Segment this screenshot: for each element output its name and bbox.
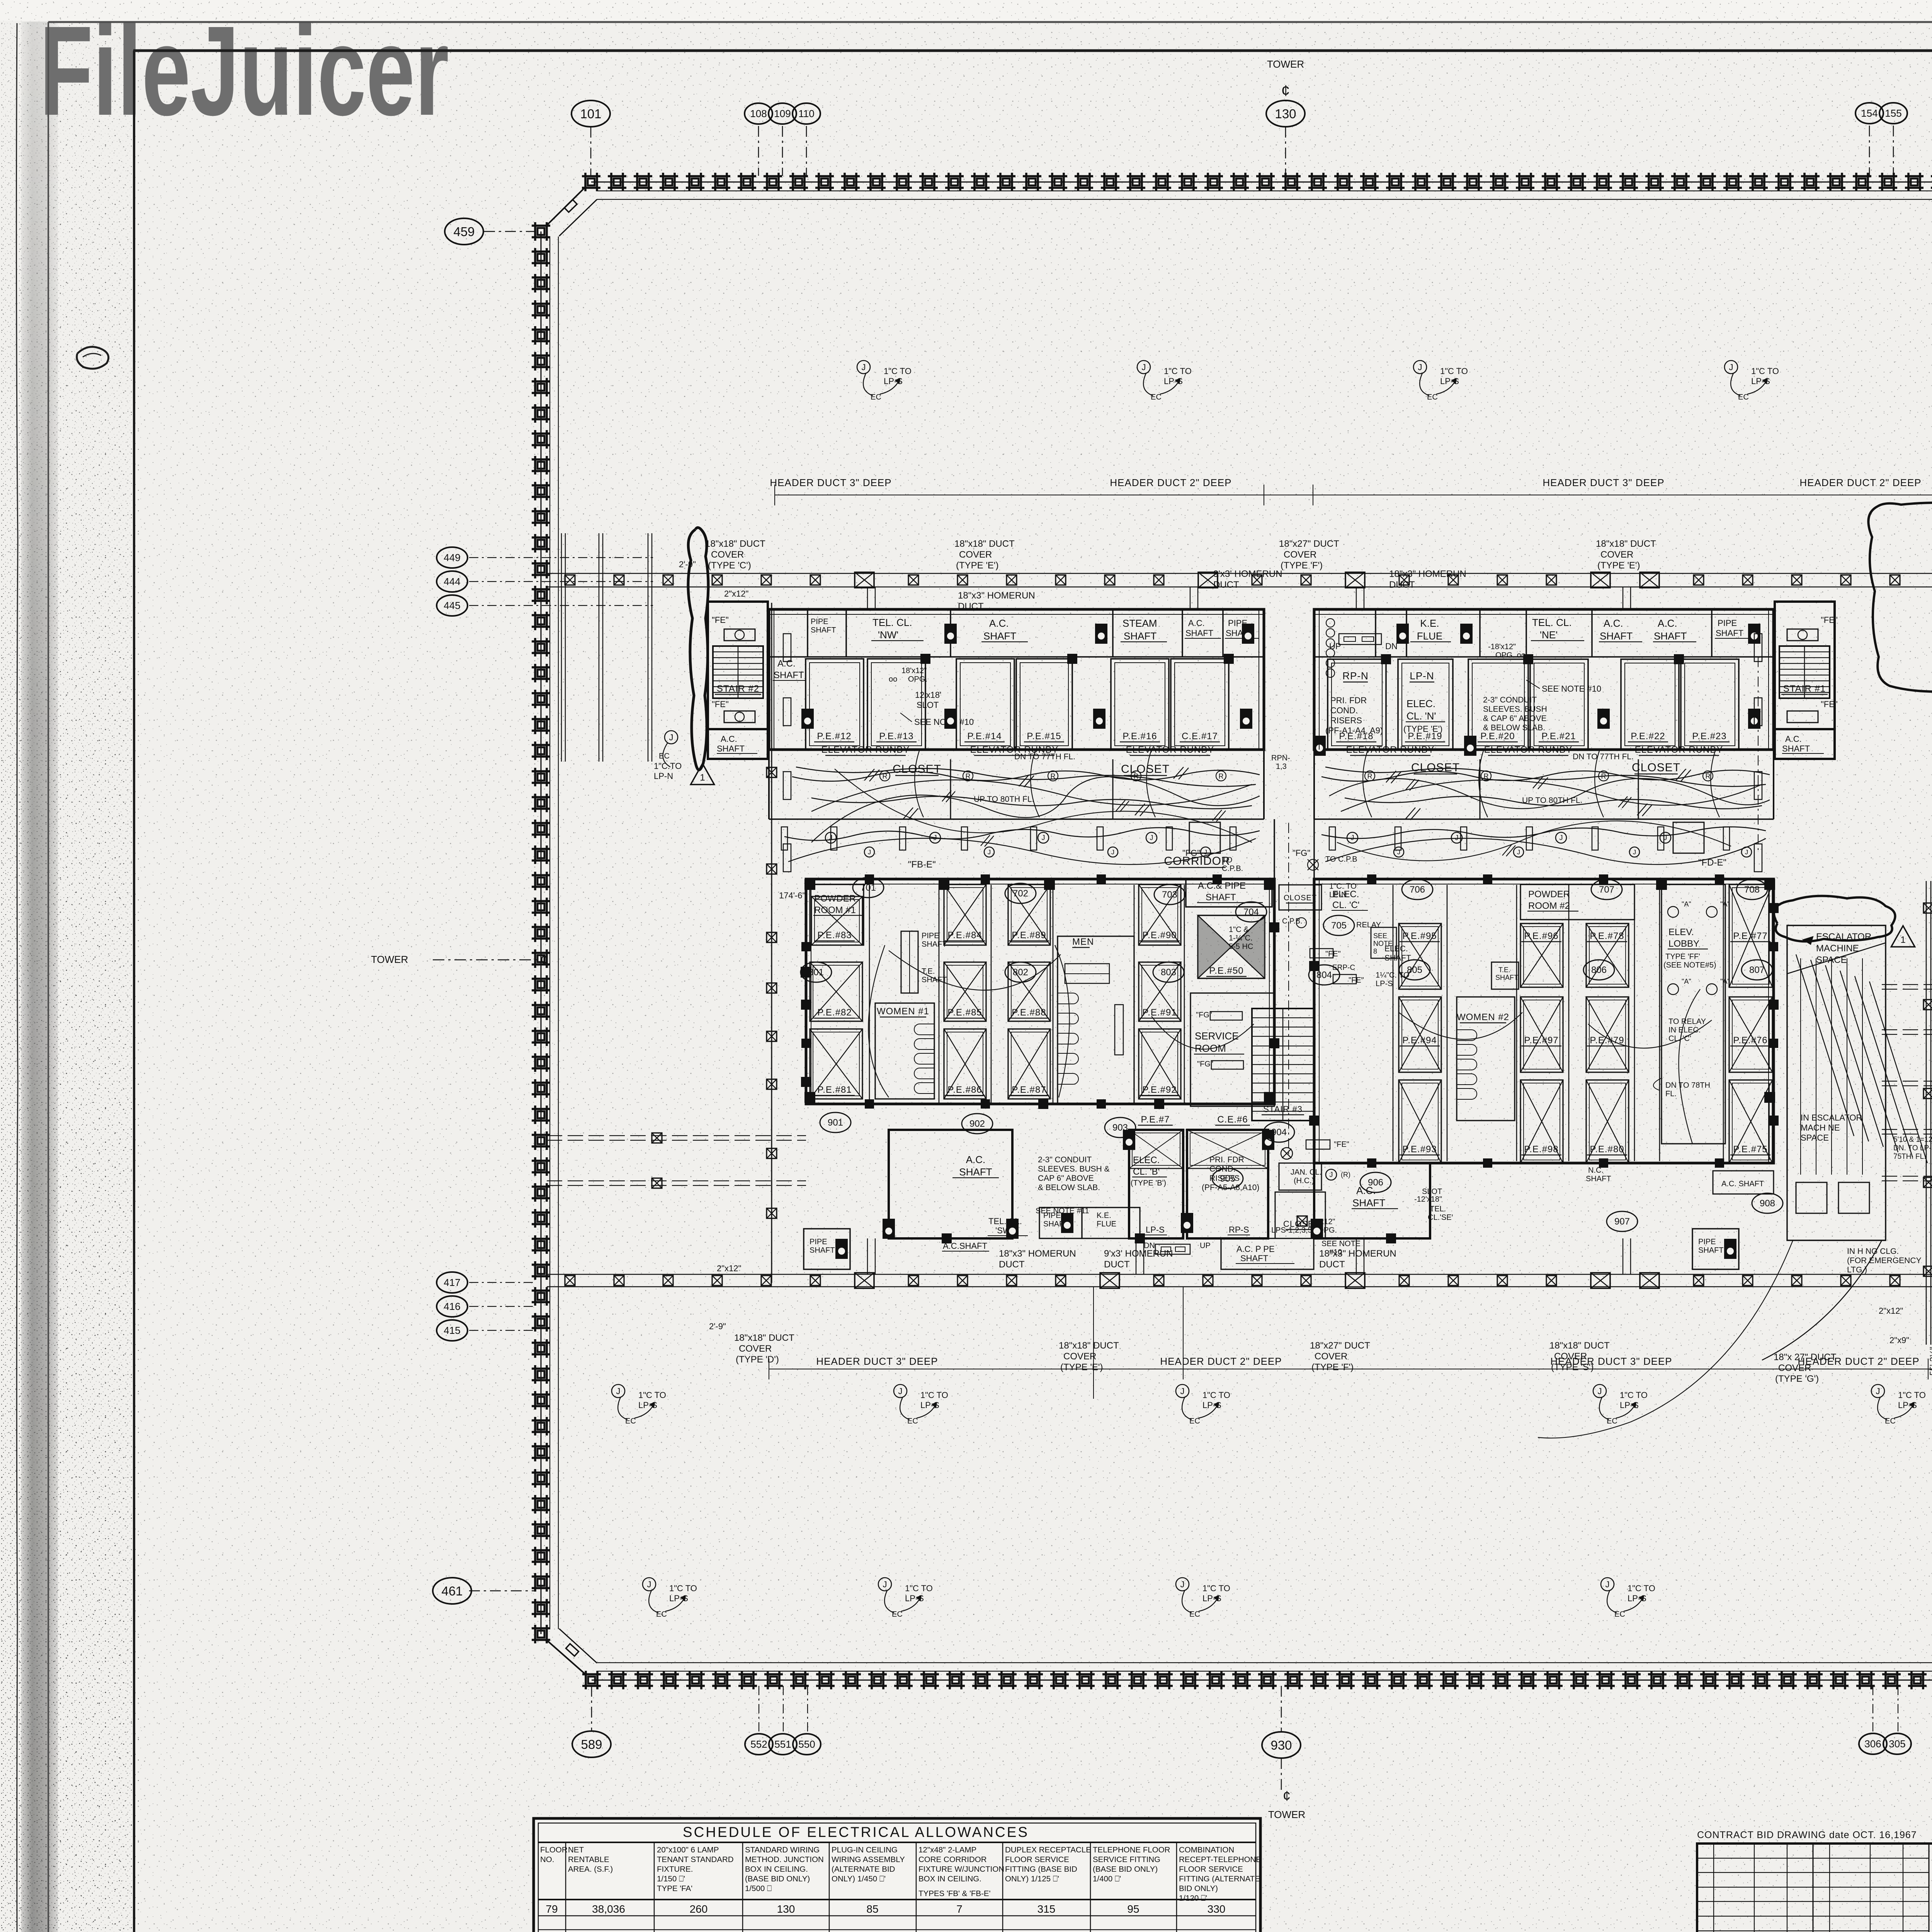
svg-text:315: 315 [1037,1903,1056,1915]
svg-text:J: J [862,362,866,372]
svg-text:RECEPT-TELEPHONE: RECEPT-TELEPHONE [1179,1855,1261,1864]
svg-text:A.C. P PE: A.C. P PE [1236,1244,1275,1254]
svg-text:EC: EC [1427,393,1438,401]
svg-text:130: 130 [1275,107,1296,121]
svg-text:SHAFT: SHAFT [1716,628,1743,638]
svg-text:A.C.: A.C. [966,1154,986,1165]
svg-text:930: 930 [1270,1738,1292,1752]
svg-text:J: J [1560,834,1563,842]
svg-text:T.E.: T.E. [922,967,935,976]
svg-text:J: J [934,834,937,842]
svg-text:1: 1 [1900,935,1905,945]
svg-text:DN. TO LP-S ON: DN. TO LP-S ON [1893,1144,1932,1152]
svg-text:18"x27" DUCT: 18"x27" DUCT [1310,1340,1370,1351]
svg-text:RELAY: RELAY [1356,921,1381,929]
svg-text:551: 551 [774,1738,791,1750]
svg-text:J: J [1598,1386,1602,1396]
svg-text:552: 552 [750,1738,767,1750]
svg-text:P.E.#18: P.E.#18 [1339,731,1373,742]
svg-text:ELEVATOR RUNBY: ELEVATOR RUNBY [1126,745,1214,755]
svg-text:STAIR #2: STAIR #2 [717,684,759,694]
svg-text:J: J [1455,834,1459,842]
svg-text:R: R [1367,772,1372,780]
svg-text:PIPE: PIPE [811,617,828,626]
svg-text:J: J [616,1386,621,1396]
svg-text:EC: EC [625,1417,636,1425]
svg-text:8: 8 [1373,947,1377,955]
svg-text:SHAFT: SHAFT [922,940,947,949]
svg-text:DUPLEX RECEPTACLE: DUPLEX RECEPTACLE [1005,1845,1091,1854]
svg-text:706: 706 [1410,884,1425,895]
svg-text:CAP 6" ABOVE: CAP 6" ABOVE [1038,1174,1094,1183]
svg-text:TO: TO [1222,856,1232,864]
svg-text:P.E.#90: P.E.#90 [1142,930,1177,940]
svg-text:550: 550 [798,1738,815,1750]
svg-text:SHAFT: SHAFT [1124,630,1156,642]
svg-text:1"C TO: 1"C TO [1628,1583,1655,1593]
svg-text:MACH NE: MACH NE [1801,1123,1840,1133]
svg-text:CL.'SE': CL.'SE' [1428,1213,1453,1222]
svg-text:18"x 27" DUCT: 18"x 27" DUCT [1774,1352,1837,1362]
svg-text:P.E.#19: P.E.#19 [1408,731,1442,742]
svg-text:907: 907 [1614,1216,1630,1227]
svg-text:WOMEN #2: WOMEN #2 [1457,1012,1509,1022]
svg-text:18"x18" DUCT: 18"x18" DUCT [734,1333,794,1343]
svg-text:260: 260 [690,1903,708,1915]
svg-text:J: J [898,1386,903,1396]
svg-text:EC: EC [1738,393,1749,401]
svg-text:K.E.: K.E. [1097,1211,1111,1220]
svg-text:'NE': 'NE' [1540,629,1558,641]
svg-text:"FE": "FE" [1334,1140,1349,1149]
svg-text:704: 704 [1243,907,1259,917]
svg-text:J: J [1605,1580,1610,1589]
svg-text:(TYPE 'E'): (TYPE 'E') [1597,560,1640,571]
svg-text:J: J [1330,1171,1333,1179]
svg-text:LP-S: LP-S [1628,1594,1646,1603]
svg-text:FLOOR SERVICE: FLOOR SERVICE [1005,1855,1069,1864]
svg-text:TYPES 'FB' & 'FB-E': TYPES 'FB' & 'FB-E' [918,1889,991,1898]
svg-text:J: J [1042,834,1045,842]
svg-text:2"x12": 2"x12" [717,1264,741,1273]
svg-text:COVER: COVER [711,549,744,560]
svg-text:P.E.#94: P.E.#94 [1402,1035,1437,1046]
svg-text:904: 904 [1271,1127,1287,1138]
svg-text:DN: DN [1144,1242,1155,1250]
svg-text:(TYPE 'S'): (TYPE 'S') [1551,1362,1594,1372]
svg-text:J: J [988,849,991,856]
svg-text:1"C TO: 1"C TO [1440,366,1468,376]
svg-text:P.E.#50: P.E.#50 [1209,966,1243,976]
svg-text:FIXTURE W/JUNCTION: FIXTURE W/JUNCTION [918,1865,1004,1874]
svg-text:COVER: COVER [1063,1351,1096,1362]
svg-text:J: J [1418,362,1422,372]
svg-text:"FE": "FE" [1821,699,1838,709]
svg-text:NO.: NO. [540,1855,554,1864]
svg-text:18'x12": 18'x12" [901,667,927,675]
svg-text:J: J [1664,834,1667,842]
svg-text:TYPE 'FF': TYPE 'FF' [1665,952,1700,961]
svg-text:COVER: COVER [739,1344,772,1354]
svg-text:ELEC.: ELEC. [1406,698,1435,709]
svg-text:LP-S: LP-S [1440,376,1459,386]
svg-text:1"C TO: 1"C TO [669,1583,697,1593]
svg-text:CLOSET: CLOSET [1121,763,1170,776]
svg-text:908: 908 [1760,1198,1775,1209]
svg-text:J: J [1633,849,1636,856]
svg-text:COMBINATION: COMBINATION [1179,1845,1234,1854]
svg-text:417: 417 [444,1277,460,1288]
svg-text:5-5 HC: 5-5 HC [1229,942,1253,951]
svg-text:SHAFT: SHAFT [1600,630,1633,642]
svg-text:(TYPE 'F'): (TYPE 'F') [1281,560,1323,571]
svg-text:(TYPE 'E'): (TYPE 'E') [956,560,999,571]
svg-text:ELEVATOR RUNBY: ELEVATOR RUNBY [1635,745,1723,755]
svg-text:(PF-A5-A8,A10): (PF-A5-A8,A10) [1202,1183,1259,1192]
svg-text:R: R [966,772,971,780]
svg-text:FLUE: FLUE [1417,630,1442,642]
svg-text:SPACE: SPACE [1816,955,1847,965]
svg-text:18"x27" DUCT: 18"x27" DUCT [1279,539,1339,549]
svg-text:SHAFT: SHAFT [1698,1246,1724,1255]
svg-text:1¼"C. TO: 1¼"C. TO [1376,971,1410,980]
svg-text:SHAFT: SHAFT [1206,892,1236,903]
svg-text:CL. 'C': CL. 'C' [1332,900,1360,910]
svg-text:MACHINE: MACHINE [1816,943,1859,954]
svg-text:1"C TO: 1"C TO [905,1583,933,1593]
svg-text:79: 79 [546,1903,558,1915]
svg-text:(TYPE 'E'): (TYPE 'E') [1060,1362,1103,1372]
svg-text:LP-S: LP-S [1146,1225,1165,1235]
svg-text:IN ESCALATOR: IN ESCALATOR [1801,1113,1862,1122]
svg-text:METHOD. JUNCTION: METHOD. JUNCTION [745,1855,824,1864]
svg-text:LP-S: LP-S [905,1594,924,1603]
svg-text:POWDER: POWDER [1528,889,1570,900]
svg-text:"FD-E": "FD-E" [1698,857,1726,868]
svg-text:703: 703 [1162,889,1177,900]
svg-text:J: J [669,733,673,742]
svg-text:18"x3" HOMERUN: 18"x3" HOMERUN [958,590,1035,601]
svg-text:1"C. TO: 1"C. TO [1329,882,1357,891]
svg-text:A.C. SHAFT: A.C. SHAFT [1721,1180,1764,1188]
svg-text:SHAFT: SHAFT [1782,744,1810,753]
svg-text:708: 708 [1744,884,1760,895]
svg-text:FITTING (BASE BID: FITTING (BASE BID [1005,1865,1077,1874]
svg-text:MEN: MEN [1072,937,1094,947]
svg-text:P.E.#15: P.E.#15 [1027,731,1061,742]
svg-text:HEADER DUCT 2" DEEP: HEADER DUCT 2" DEEP [1110,477,1231,488]
svg-text:1"C TO: 1"C TO [884,366,912,376]
svg-text:1/400 ⎕': 1/400 ⎕' [1093,1874,1121,1883]
svg-text:ELEC.: ELEC. [1384,944,1408,953]
svg-text:¢: ¢ [1283,1788,1291,1804]
svg-text:EC: EC [1614,1610,1625,1619]
svg-text:(TYPE 'B'): (TYPE 'B') [1131,1179,1166,1187]
svg-text:J: J [1397,849,1401,856]
svg-text:ELEVATOR RUNBY: ELEVATOR RUNBY [821,745,910,755]
svg-text:ROOM #2: ROOM #2 [1528,901,1570,911]
svg-text:HEADER DUCT 3" DEEP: HEADER DUCT 3" DEEP [1543,477,1664,488]
svg-text:905: 905 [1220,1173,1235,1184]
svg-text:SHAFT: SHAFT [774,670,804,680]
svg-text:445: 445 [444,600,460,611]
svg-text:SERVICE: SERVICE [1195,1030,1239,1042]
svg-text:¢: ¢ [1281,82,1290,99]
svg-text:RPN-: RPN- [1271,754,1290,762]
svg-text:P.E.#21: P.E.#21 [1541,731,1576,742]
svg-text:J: J [1111,849,1115,856]
svg-text:"A": "A" [1682,978,1691,985]
svg-text:LP-S: LP-S [1202,1594,1221,1603]
svg-text:2-3" CONDUIT: 2-3" CONDUIT [1483,696,1537,704]
svg-text:"A": "A" [1720,978,1730,985]
svg-text:ELEV.: ELEV. [1668,927,1694,937]
svg-text:P.E.#76: P.E.#76 [1733,1035,1767,1046]
svg-text:PIPE: PIPE [922,932,939,940]
svg-text:95: 95 [1127,1903,1139,1915]
svg-text:PLUG-IN CEILING: PLUG-IN CEILING [832,1845,898,1854]
svg-text:STAIR #1: STAIR #1 [1783,684,1826,694]
svg-text:55'-2½": 55'-2½" [1928,1347,1932,1376]
svg-text:2"x12": 2"x12" [1879,1306,1903,1316]
svg-text:2"x9": 2"x9" [1889,1335,1909,1345]
svg-text:1"C TO: 1"C TO [1620,1390,1648,1400]
svg-text:COVER: COVER [1554,1351,1587,1362]
svg-text:SCHEDULE OF ELECTRICAL A: SCHEDULE OF ELECTRICAL ALLOWANCES [683,1824,1029,1840]
svg-text:P.E.#83: P.E.#83 [817,930,852,940]
svg-text:1/500 ⎕: 1/500 ⎕ [745,1884,772,1893]
svg-text:110: 110 [798,108,814,119]
svg-text:1: 1 [700,772,705,783]
svg-text:LP-N: LP-N [654,771,673,781]
svg-text:P.E.#20: P.E.#20 [1480,731,1515,742]
svg-text:TEL.: TEL. [1430,1205,1446,1213]
svg-text:2"x12": 2"x12" [724,589,748,599]
svg-text:1"C TO: 1"C TO [638,1390,666,1400]
svg-text:PIPE: PIPE [1043,1211,1061,1220]
svg-text:LP-S: LP-S [884,376,903,386]
svg-text:& CAP 6" ABOVE: & CAP 6" ABOVE [1483,714,1547,723]
svg-text:K.E.: K.E. [1420,617,1439,629]
svg-text:J: J [1204,849,1207,856]
svg-text:P.E.#97: P.E.#97 [1524,1035,1558,1046]
svg-text:P.E.#81: P.E.#81 [817,1085,852,1095]
svg-text:P.E.#12: P.E.#12 [817,731,851,742]
svg-text:POWDER: POWDER [814,893,856,904]
svg-text:SHAFT: SHAFT [922,976,947,984]
svg-text:(R): (R) [1341,1171,1350,1179]
svg-text:DN TO 77TH FL.: DN TO 77TH FL. [1573,752,1634,761]
svg-text:COVER: COVER [1600,549,1633,560]
svg-text:EC: EC [1189,1610,1200,1619]
svg-text:P.E.#7: P.E.#7 [1141,1114,1170,1125]
svg-text:LP-S: LP-S [1898,1400,1917,1410]
svg-text:P.E.#23: P.E.#23 [1692,731,1726,742]
svg-text:SHAFT: SHAFT [1586,1175,1611,1183]
svg-text:LP-S: LP-S [669,1594,688,1603]
svg-text:TEL. CL.: TEL. CL. [872,617,912,628]
svg-text:HEADER DUCT 3" DEEP: HEADER DUCT 3" DEEP [770,477,891,488]
svg-text:COVER: COVER [1778,1363,1811,1373]
svg-text:PRI. FDR: PRI. FDR [1330,696,1367,705]
svg-text:SLOT: SLOT [1422,1187,1442,1196]
svg-text:1-¼"C.: 1-¼"C. [1229,934,1253,942]
svg-text:ROOM #1: ROOM #1 [814,905,856,915]
svg-text:PIPE: PIPE [1718,618,1737,628]
svg-text:R: R [883,772,888,780]
svg-text:(H.C.): (H.C.) [1294,1177,1314,1185]
svg-text:WOMEN #1: WOMEN #1 [877,1006,929,1017]
svg-text:1"C TO: 1"C TO [1898,1390,1926,1400]
svg-text:HEADER DUCT 2" DEEP: HEADER DUCT 2" DEEP [1799,477,1921,488]
svg-text:PIPE: PIPE [810,1238,827,1246]
svg-text:DUCT: DUCT [1319,1259,1345,1270]
svg-text:TEL. CL.: TEL. CL. [1532,617,1572,628]
svg-text:CL. 'N': CL. 'N' [1406,710,1436,722]
svg-text:P.E.#91: P.E.#91 [1142,1007,1177,1018]
svg-text:SERVICE FITTING: SERVICE FITTING [1093,1855,1160,1864]
svg-text:J: J [1729,362,1733,372]
svg-text:J: J [1517,849,1520,856]
svg-text:5'10 & 1=12-1"C: 5'10 & 1=12-1"C [1893,1136,1932,1144]
svg-text:18"x18" DUCT: 18"x18" DUCT [1596,539,1656,549]
svg-text:18"x18" DUCT: 18"x18" DUCT [705,539,765,549]
svg-text:FIXTURE.: FIXTURE. [657,1865,693,1874]
svg-text:P.E.#96: P.E.#96 [1524,931,1558,941]
svg-text:& BELOW SLAB.: & BELOW SLAB. [1038,1183,1100,1192]
svg-text:306: 306 [1864,1738,1881,1750]
svg-text:461: 461 [441,1584,463,1598]
svg-text:P.E.#92: P.E.#92 [1142,1085,1177,1095]
svg-text:SEE: SEE [1373,932,1387,940]
svg-text:1"C TO: 1"C TO [1164,366,1192,376]
svg-text:AREA. (S.F.): AREA. (S.F.) [568,1865,613,1874]
svg-text:1/120 ⎕': 1/120 ⎕' [1179,1894,1207,1903]
svg-text:108: 108 [750,108,767,119]
svg-text:SHAFT: SHAFT [811,626,836,634]
svg-text:589: 589 [581,1737,602,1752]
svg-text:SHAFT: SHAFT [717,744,745,753]
svg-text:'NW': 'NW' [878,629,898,641]
svg-text:FITTING (ALTERNATE: FITTING (ALTERNATE [1179,1874,1260,1883]
svg-text:7: 7 [956,1903,963,1915]
svg-text:P.E.#16: P.E.#16 [1122,731,1157,742]
svg-text:C.E.#6: C.E.#6 [1217,1114,1248,1125]
svg-text:"FG": "FG" [1293,848,1310,858]
svg-text:"FG": "FG" [1197,1060,1213,1068]
svg-text:P.E.#88: P.E.#88 [1012,1007,1046,1018]
svg-text:P.E.#84: P.E.#84 [947,930,982,940]
svg-text:P.E.#93: P.E.#93 [1402,1144,1437,1155]
svg-text:101: 101 [580,107,601,121]
svg-text:903: 903 [1112,1122,1128,1133]
svg-text:DUCT: DUCT [999,1259,1025,1270]
svg-text:J: J [1180,1386,1185,1396]
svg-text:2'-9": 2'-9" [709,1321,726,1331]
svg-text:705: 705 [1331,920,1347,931]
svg-text:12'x18': 12'x18' [915,690,941,700]
svg-text:SLEEVES. BUSH: SLEEVES. BUSH [1483,705,1547,714]
svg-text:18"x18" DUCT: 18"x18" DUCT [954,539,1015,549]
svg-text:J: J [1180,1580,1185,1589]
svg-text:P.E.#86: P.E.#86 [947,1085,982,1095]
svg-text:707: 707 [1599,884,1614,895]
svg-text:J: J [829,834,833,842]
svg-text:804: 804 [1316,970,1332,980]
svg-text:130: 130 [777,1903,795,1915]
svg-text:FLOOR: FLOOR [540,1845,568,1854]
svg-text:A.C.: A.C. [1604,617,1623,629]
svg-text:oo: oo [889,675,897,684]
svg-text:P.E.#75: P.E.#75 [1733,1144,1767,1155]
svg-text:ELEVATOR RUNBY: ELEVATOR RUNBY [1484,745,1573,755]
svg-text:20"x100" 6 LAMP: 20"x100" 6 LAMP [657,1845,719,1854]
svg-text:1"C &: 1"C & [1229,925,1249,934]
svg-text:DN TO 77TH FL.: DN TO 77TH FL. [1014,752,1075,761]
svg-text:154: 154 [1861,107,1878,119]
svg-text:85: 85 [866,1903,878,1915]
svg-text:701: 701 [861,883,876,893]
svg-text:RP-N: RP-N [1342,670,1369,682]
svg-text:449: 449 [444,552,460,563]
svg-text:LP-S: LP-S [920,1400,939,1410]
svg-text:TYPE 'FA': TYPE 'FA' [657,1884,692,1893]
svg-text:A.C.: A.C. [1785,734,1802,744]
svg-text:RENTABLE: RENTABLE [568,1855,609,1864]
svg-text:STEAM: STEAM [1122,617,1157,629]
svg-text:1/150 ⎕': 1/150 ⎕' [657,1874,685,1883]
svg-text:18"x3" HOMERUN: 18"x3" HOMERUN [1389,569,1466,579]
svg-text:906: 906 [1368,1177,1383,1188]
svg-text:BID ONLY): BID ONLY) [1179,1884,1218,1893]
svg-text:J: J [1876,1386,1880,1396]
svg-text:J: J [1745,849,1748,856]
svg-text:C.E.#17: C.E.#17 [1182,731,1218,742]
svg-text:FLOOR SERVICE: FLOOR SERVICE [1179,1865,1243,1874]
svg-text:155: 155 [1885,107,1901,119]
svg-text:A.C.: A.C. [1658,617,1677,629]
svg-text:1"C TO: 1"C TO [1202,1390,1230,1400]
svg-text:415: 415 [444,1325,460,1336]
svg-text:WIRING ASSEMBLY: WIRING ASSEMBLY [832,1855,905,1864]
svg-text:COVER: COVER [1315,1351,1347,1362]
svg-text:EC: EC [1885,1417,1896,1425]
svg-text:LP-S: LP-S [1376,980,1393,988]
svg-text:P.E.#98: P.E.#98 [1524,1144,1558,1155]
svg-text:LOBBY: LOBBY [1668,939,1699,949]
svg-text:18"x3" HOMERUN: 18"x3" HOMERUN [999,1248,1076,1259]
svg-text:DN: DN [1385,641,1398,651]
svg-text:(TYPE 'G'): (TYPE 'G') [1775,1374,1819,1384]
svg-text:TELEPHONE FLOOR: TELEPHONE FLOOR [1093,1845,1170,1854]
svg-text:174'-6": 174'-6" [779,891,805,900]
svg-text:FL.: FL. [1665,1090,1677,1098]
svg-text:EC: EC [892,1610,903,1619]
svg-text:1,3: 1,3 [1276,762,1287,771]
svg-text:"FB-E": "FB-E" [908,859,936,870]
svg-text:BOX IN CEILING.: BOX IN CEILING. [745,1865,808,1874]
svg-text:OPG.: OPG. [908,675,927,684]
svg-text:416: 416 [444,1301,460,1312]
svg-text:LPS-1,2,3,5: LPS-1,2,3,5 [1271,1226,1312,1235]
svg-text:P.E.#14: P.E.#14 [967,731,1002,742]
svg-text:12"x48" 2-LAMP: 12"x48" 2-LAMP [918,1845,976,1854]
svg-text:2'-9": 2'-9" [679,560,696,569]
svg-text:(SEE NOTE#5): (SEE NOTE#5) [1663,961,1716,969]
svg-text:LP-S: LP-S [1164,376,1183,386]
svg-text:J: J [1142,362,1146,372]
svg-text:COVER: COVER [1284,549,1316,560]
